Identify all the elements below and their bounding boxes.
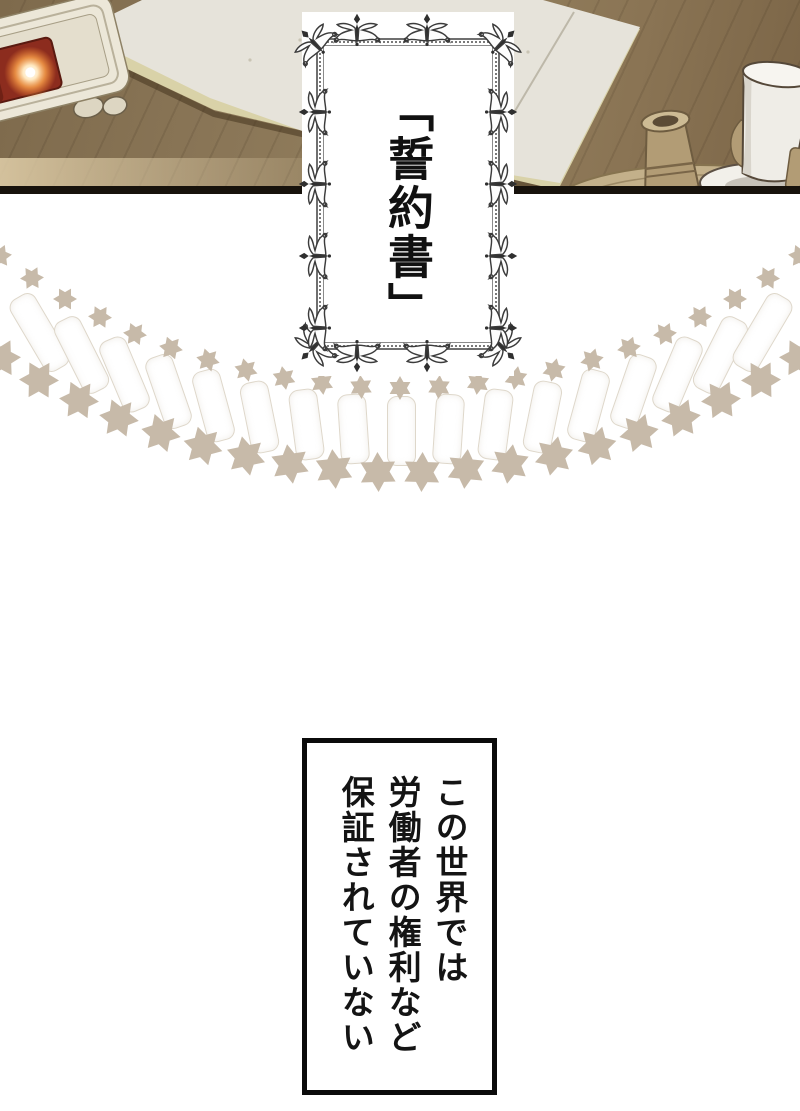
- six-pointed-star-icon: [135, 408, 186, 459]
- six-pointed-star-icon: [614, 408, 665, 459]
- six-pointed-star-icon: [231, 356, 260, 385]
- ribbon-streamer: [649, 334, 706, 416]
- six-pointed-star-icon: [771, 330, 800, 385]
- caption-box: この世界では 労働者の権利など 保証されていない: [302, 738, 497, 1095]
- six-pointed-star-icon: [119, 318, 151, 350]
- six-pointed-star-icon: [179, 421, 228, 470]
- six-pointed-star-icon: [49, 282, 82, 315]
- six-pointed-star-icon: [577, 345, 607, 375]
- six-pointed-star-icon: [348, 374, 373, 399]
- six-pointed-star-icon: [270, 364, 298, 392]
- six-pointed-star-icon: [12, 353, 66, 407]
- six-pointed-star-icon: [426, 374, 451, 399]
- ribbon-streamer: [190, 367, 237, 445]
- ribbon-streamer: [50, 313, 112, 397]
- caption-line: 保証されていない: [331, 775, 378, 1075]
- six-pointed-star-icon: [613, 332, 644, 363]
- six-pointed-star-icon: [193, 345, 223, 375]
- six-pointed-star-icon: [684, 301, 716, 333]
- ribbon-streamer: [729, 289, 796, 375]
- six-pointed-star-icon: [751, 262, 784, 295]
- ribbon-streamer: [337, 393, 371, 465]
- ribbon-streamer: [432, 393, 466, 465]
- ribbon-streamer: [287, 388, 325, 462]
- caption-line: この世界では: [425, 775, 472, 1075]
- ribbon-streamer: [96, 334, 153, 416]
- caption-text: この世界では 労働者の権利など 保証されていない: [331, 775, 472, 1075]
- six-pointed-star-icon: [222, 432, 269, 479]
- ribbon-streamer: [238, 379, 281, 455]
- ribbon-streamer: [6, 289, 73, 375]
- six-pointed-star-icon: [655, 392, 707, 444]
- ribbon-streamer: [521, 379, 564, 455]
- caption-line: 労働者の権利など: [378, 775, 425, 1075]
- six-pointed-star-icon: [312, 447, 355, 490]
- six-pointed-star-icon: [84, 301, 116, 333]
- six-pointed-star-icon: [530, 432, 577, 479]
- comic-page: 「誓約書」: [0, 0, 800, 1111]
- inkpot-illustration: [635, 108, 698, 187]
- six-pointed-star-icon: [445, 447, 488, 490]
- six-pointed-star-icon: [488, 441, 533, 486]
- six-pointed-star-icon: [52, 373, 105, 426]
- box-foot: [101, 94, 129, 117]
- six-pointed-star-icon: [695, 373, 748, 426]
- six-pointed-star-icon: [0, 239, 17, 273]
- six-pointed-star-icon: [734, 353, 788, 407]
- six-pointed-star-icon: [783, 239, 800, 273]
- six-pointed-star-icon: [388, 376, 412, 400]
- six-pointed-star-icon: [540, 356, 569, 385]
- six-pointed-star-icon: [93, 392, 145, 444]
- six-pointed-star-icon: [267, 441, 312, 486]
- ribbon-streamer: [690, 313, 752, 397]
- oath-title: 「誓約書」: [375, 86, 441, 331]
- six-pointed-star-icon: [402, 451, 443, 492]
- ribbon-streamer: [387, 396, 416, 466]
- six-pointed-star-icon: [156, 332, 187, 363]
- oath-frame: 「誓約書」: [302, 12, 514, 376]
- six-pointed-star-icon: [16, 262, 49, 295]
- ribbon-streamer: [608, 352, 660, 432]
- six-pointed-star-icon: [649, 318, 681, 350]
- six-pointed-star-icon: [0, 330, 29, 385]
- ribbon-streamer: [143, 352, 195, 432]
- six-pointed-star-icon: [718, 282, 751, 315]
- six-pointed-star-icon: [357, 451, 398, 492]
- six-pointed-star-icon: [572, 421, 621, 470]
- ribbon-streamer: [476, 388, 514, 462]
- ribbon-streamer: [565, 367, 612, 445]
